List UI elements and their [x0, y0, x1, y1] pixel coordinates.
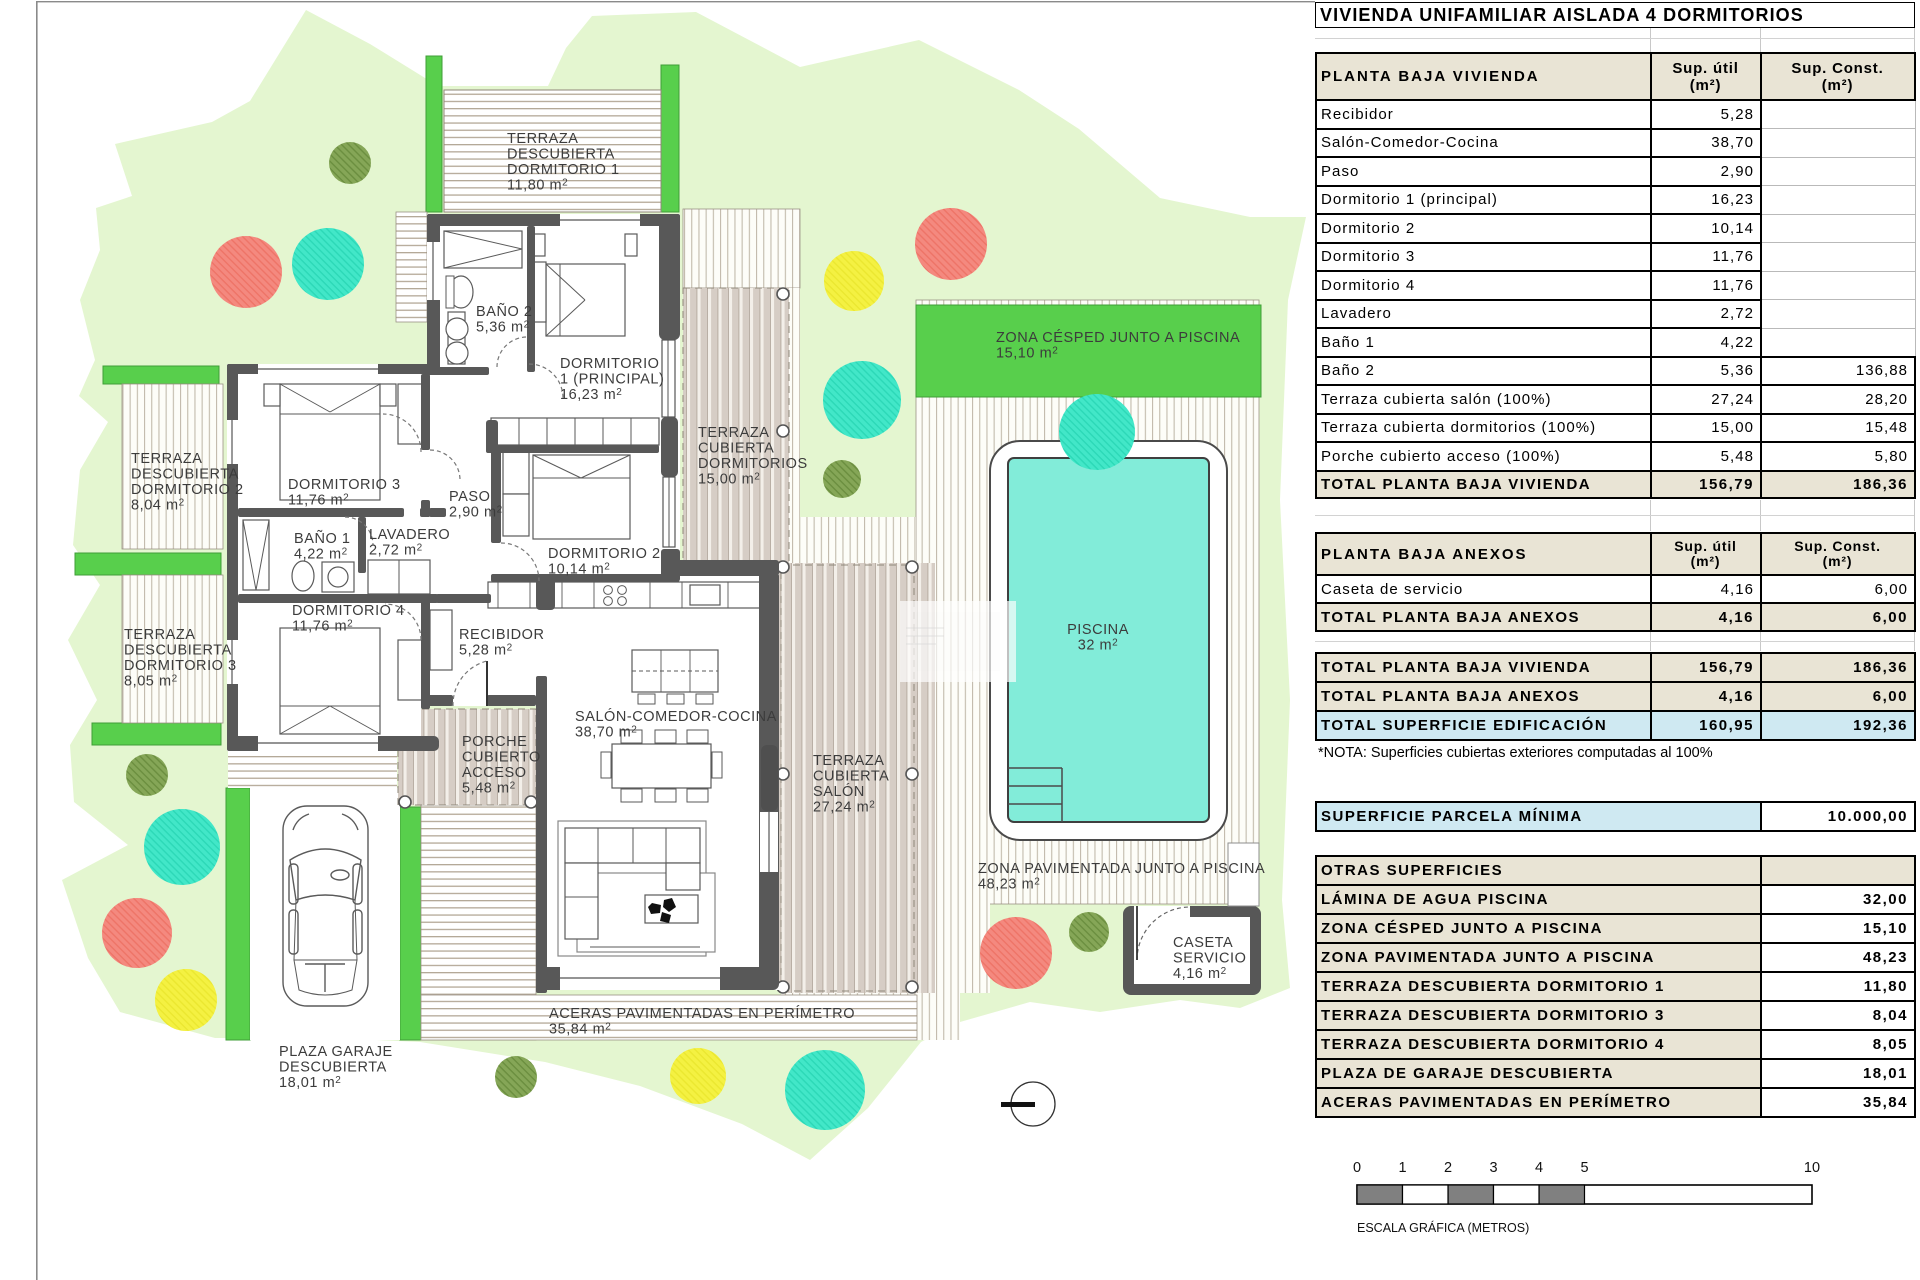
svg-text:4: 4 — [1535, 1160, 1543, 1176]
svg-text:10: 10 — [1804, 1160, 1820, 1176]
svg-text:PLAZA GARAJEDESCUBIERTA18,01 m: PLAZA GARAJEDESCUBIERTA18,01 m2 — [279, 1044, 393, 1091]
svg-text:2: 2 — [1444, 1160, 1452, 1176]
svg-text:1: 1 — [1398, 1160, 1406, 1176]
svg-text:ESCALA GRÁFICA (METROS): ESCALA GRÁFICA (METROS) — [1357, 1220, 1529, 1235]
svg-text:3: 3 — [1489, 1160, 1497, 1176]
svg-text:5: 5 — [1580, 1160, 1588, 1176]
svg-text:0: 0 — [1353, 1160, 1361, 1176]
